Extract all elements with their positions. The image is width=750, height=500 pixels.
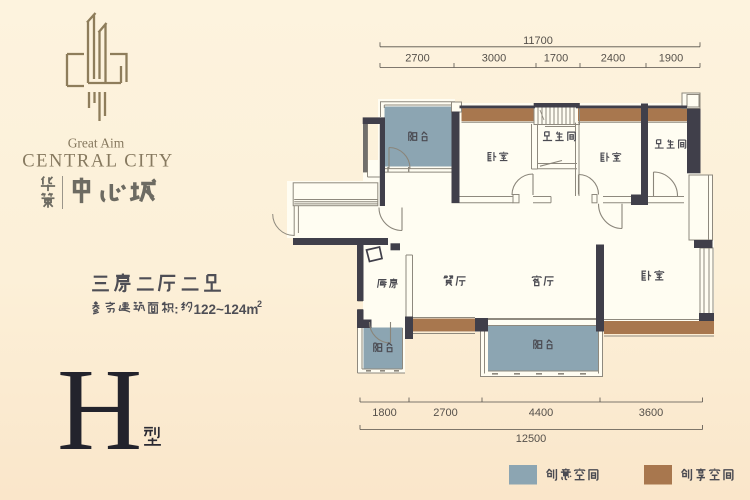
svg-text:CENTRAL CITY: CENTRAL CITY [22, 152, 174, 172]
svg-text:3000: 3000 [482, 53, 506, 65]
svg-text:122~124m: 122~124m [194, 302, 259, 317]
svg-text:H: H [57, 344, 142, 475]
svg-text:1900: 1900 [659, 53, 683, 65]
svg-text::: : [174, 302, 178, 317]
svg-text:2700: 2700 [433, 407, 457, 419]
svg-text:2400: 2400 [601, 53, 625, 65]
svg-text:4400: 4400 [529, 407, 553, 419]
svg-text:Great Aim: Great Aim [68, 136, 125, 151]
svg-text:2: 2 [257, 299, 262, 309]
svg-text:11700: 11700 [523, 35, 553, 47]
svg-text:3600: 3600 [639, 407, 663, 419]
svg-text:1700: 1700 [544, 53, 568, 65]
svg-text:2700: 2700 [405, 53, 429, 65]
svg-text:12500: 12500 [516, 433, 547, 445]
svg-text:1800: 1800 [372, 407, 396, 419]
